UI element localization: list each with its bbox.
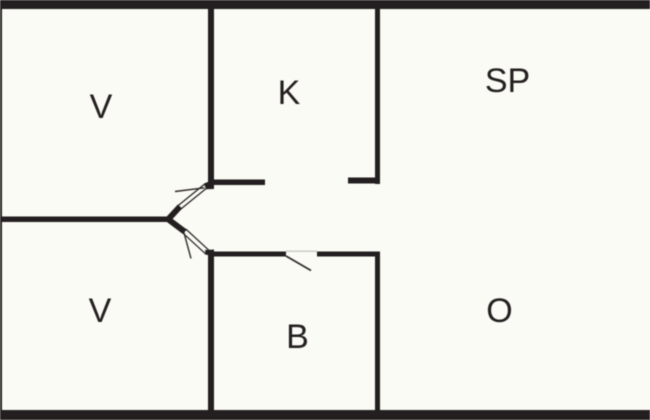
svg-text:V: V xyxy=(90,88,113,126)
svg-text:K: K xyxy=(278,74,301,112)
svg-text:O: O xyxy=(486,292,512,330)
svg-text:SP: SP xyxy=(485,62,530,100)
svg-text:B: B xyxy=(286,318,309,356)
svg-text:V: V xyxy=(89,292,112,330)
